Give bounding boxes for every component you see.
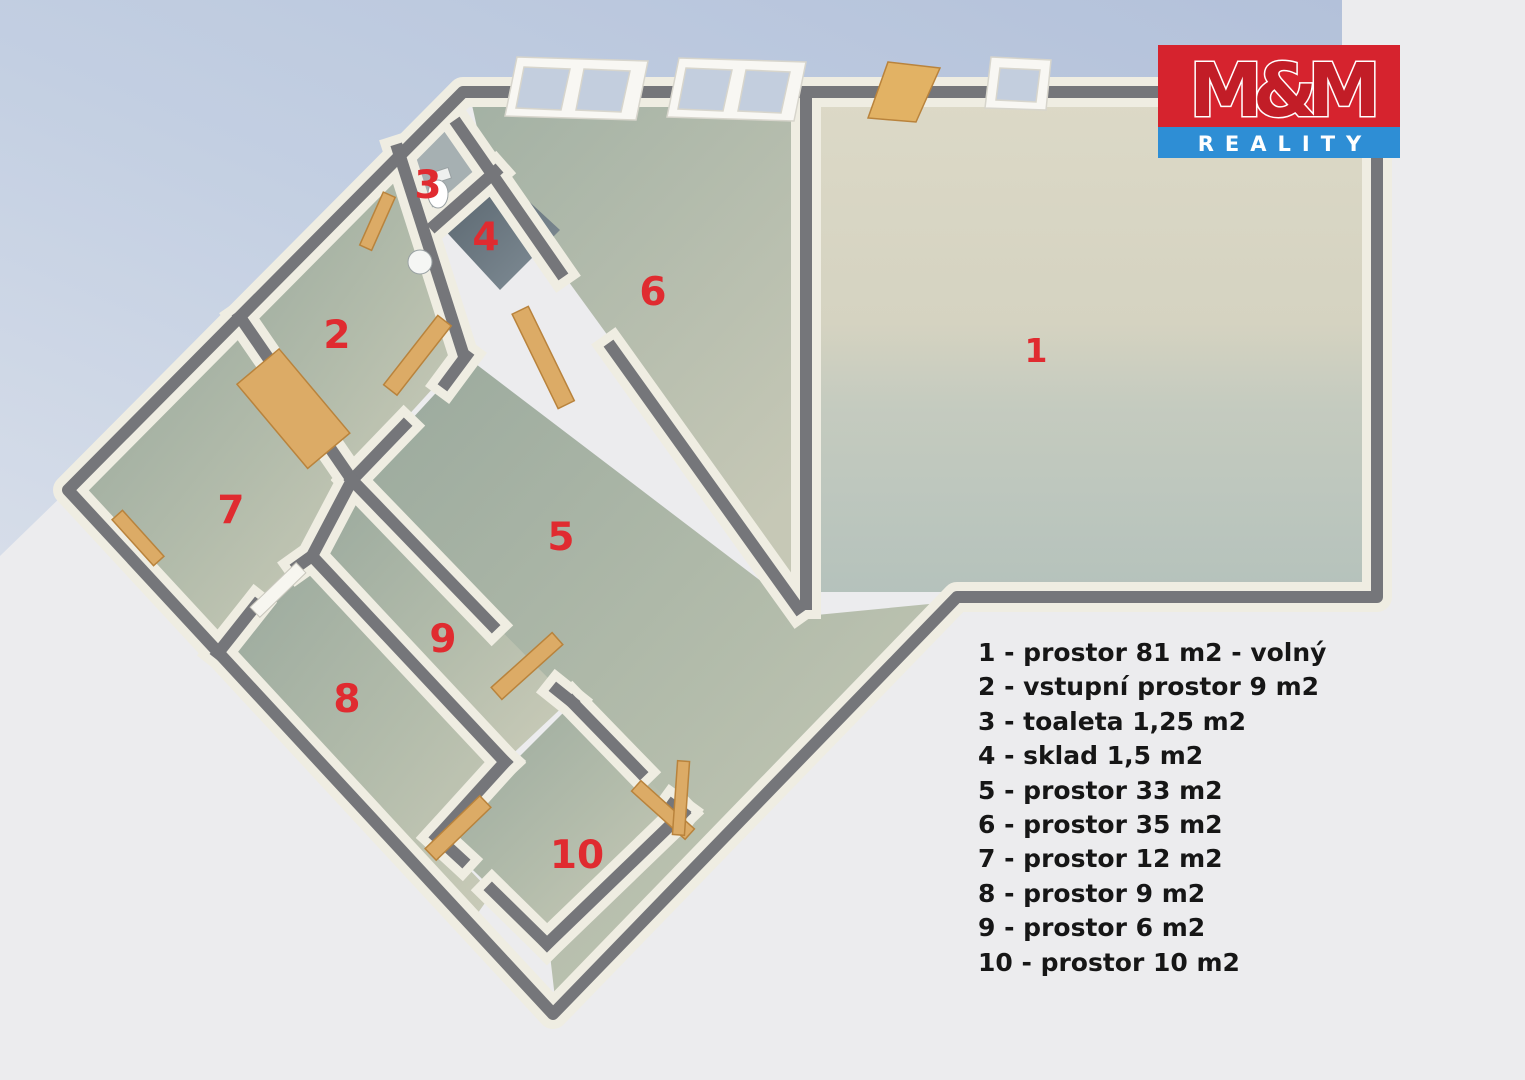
- room-5-label: 5: [547, 515, 574, 560]
- legend-line-7: 7 - prostor 12 m2: [978, 844, 1223, 873]
- floorplan-svg: 1 2 3 4 5 6 7 8 9 10 1 - prostor 81 m2 -…: [0, 0, 1525, 1080]
- window-pane-1b: [576, 69, 630, 112]
- sink-icon: [408, 250, 432, 274]
- room-2-label: 2: [323, 313, 350, 358]
- logo-subtitle: REALITY: [1198, 132, 1373, 156]
- window-pane-3: [996, 68, 1040, 102]
- mm-reality-logo: M&M REALITY: [1158, 45, 1400, 158]
- legend-line-5: 5 - prostor 33 m2: [978, 776, 1223, 805]
- room-9-label: 9: [429, 617, 456, 662]
- legend-line-8: 8 - prostor 9 m2: [978, 879, 1205, 908]
- room-1-label: 1: [1025, 331, 1048, 370]
- room-10-label: 10: [550, 833, 604, 878]
- room-7-label: 7: [217, 488, 244, 533]
- room-8-label: 8: [333, 677, 360, 722]
- legend-line-2: 2 - vstupní prostor 9 m2: [978, 672, 1319, 701]
- window-pane-2b: [738, 70, 790, 113]
- window-pane-1a: [516, 67, 570, 110]
- room-1-floor: [812, 95, 1371, 592]
- floorplan-image: 1 2 3 4 5 6 7 8 9 10 1 - prostor 81 m2 -…: [0, 0, 1525, 1080]
- logo-title: M&M: [1189, 48, 1374, 134]
- window-pane-2a: [678, 68, 732, 111]
- room-4-label: 4: [472, 215, 499, 260]
- legend-line-3: 3 - toaleta 1,25 m2: [978, 707, 1246, 736]
- legend-line-4: 4 - sklad 1,5 m2: [978, 741, 1203, 770]
- legend-line-9: 9 - prostor 6 m2: [978, 913, 1205, 942]
- room-6-label: 6: [639, 270, 666, 315]
- legend-line-1: 1 - prostor 81 m2 - volný: [978, 638, 1326, 667]
- room-3-label: 3: [414, 163, 441, 208]
- legend-line-6: 6 - prostor 35 m2: [978, 810, 1223, 839]
- legend-line-10: 10 - prostor 10 m2: [978, 948, 1240, 977]
